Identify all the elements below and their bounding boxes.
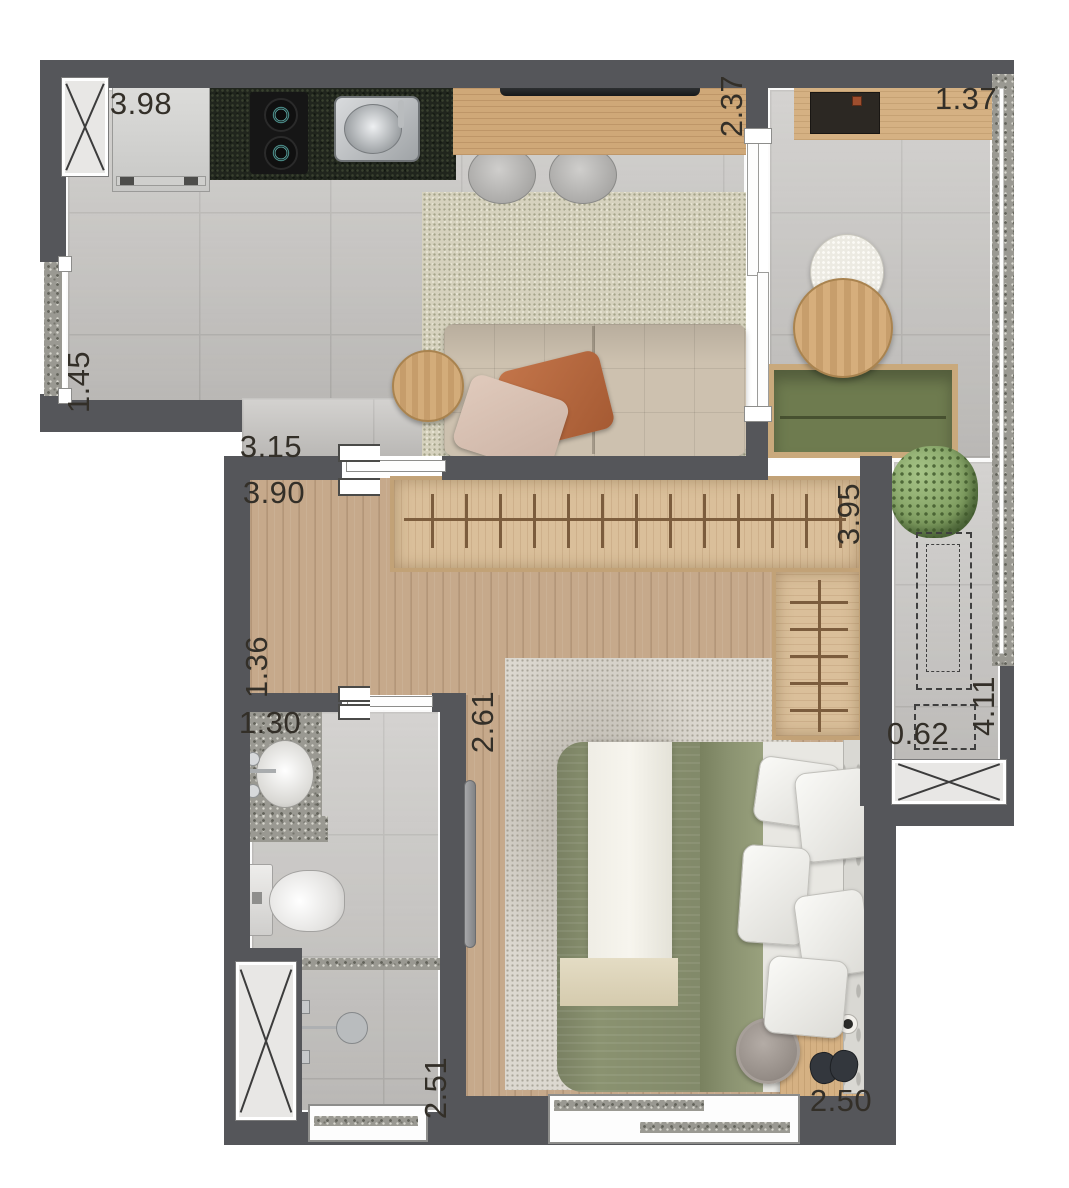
balcony-sliding-door-panel [757, 272, 769, 412]
wall-bath-top-b [432, 693, 452, 712]
wall-top [40, 60, 1014, 88]
dim-bedroom-opening: 2.61 [465, 691, 501, 753]
bench-seat-line [780, 416, 946, 419]
vanity-faucet [250, 769, 276, 773]
pocket-door-bracket [338, 478, 380, 496]
ventilation-shaft-tech [892, 760, 1006, 804]
dim-entry-width: 1.45 [61, 351, 97, 413]
dim-closet-room-width: 3.90 [243, 475, 305, 511]
wall-living-bottom-b [442, 456, 768, 480]
bedroom-sliding-door-panel [464, 780, 476, 948]
floor-plan: 3.98 2.37 1.37 1.45 3.15 3.90 3.95 1.36 … [0, 0, 1069, 1188]
bedroom-window-sill [640, 1122, 790, 1133]
dim-hall-width: 1.36 [239, 636, 275, 698]
bathroom-door-bracket [338, 704, 370, 720]
pocket-door-bracket [338, 444, 380, 462]
bed-pillow [763, 955, 849, 1040]
bed-foot-blanket [560, 958, 678, 1006]
entry-threshold [44, 262, 62, 396]
dim-kitchen-run-width: 3.98 [110, 86, 172, 122]
ventilation-shaft-bathroom [236, 962, 296, 1120]
ventilation-shaft-kitchen [62, 78, 108, 176]
burner-icon [264, 98, 298, 132]
dim-bedroom-width: 2.50 [810, 1083, 872, 1119]
balcony-sliding-door-panel [747, 140, 759, 276]
wardrobe-hangers [790, 580, 848, 732]
burner-icon [264, 136, 298, 170]
garden-bench [768, 364, 958, 458]
balcony-glazing [999, 88, 1004, 654]
toilet [269, 870, 345, 932]
bedroom-window-sill [554, 1100, 704, 1111]
refrigerator-hinge [120, 177, 134, 185]
kitchen-faucet [398, 100, 404, 128]
bottle-tray [810, 92, 880, 134]
shaft-x-icon [239, 965, 293, 1117]
bathroom-window-sill [314, 1116, 418, 1126]
shaft-x-icon [65, 81, 105, 173]
dim-vanity-width: 1.30 [239, 705, 301, 741]
entry-door-jamb [58, 256, 72, 272]
dim-living-room-width: 3.15 [240, 429, 302, 465]
refrigerator-hinge [184, 177, 198, 185]
ac-condenser-outline-inner [926, 544, 960, 672]
toilet-flush-button [252, 892, 262, 904]
dim-balcony-length: 4.11 [966, 676, 1002, 736]
dim-tech-ledge-width: 0.62 [887, 716, 949, 752]
dim-balcony-bar-width: 1.37 [935, 81, 997, 117]
vanity-end-panel [250, 816, 328, 842]
door-jamb [744, 406, 772, 422]
round-table [793, 278, 893, 378]
dim-shower-room-length: 2.51 [418, 1057, 454, 1119]
side-table [392, 350, 464, 422]
shaft-x-icon [895, 763, 1003, 801]
bottle-accent [852, 96, 862, 106]
wardrobe-hangers [404, 494, 846, 548]
tv-sideboard [453, 88, 746, 155]
bathroom-door-bracket [338, 686, 370, 702]
dim-living-balcony-opening: 2.37 [714, 75, 750, 137]
shower-head [336, 1012, 368, 1044]
potted-plant [890, 446, 978, 538]
kitchen-sink-bowl [344, 104, 402, 154]
shower-threshold [296, 958, 454, 970]
vanity-sink [256, 740, 314, 808]
dim-closet-room-depth: 3.95 [831, 483, 867, 545]
